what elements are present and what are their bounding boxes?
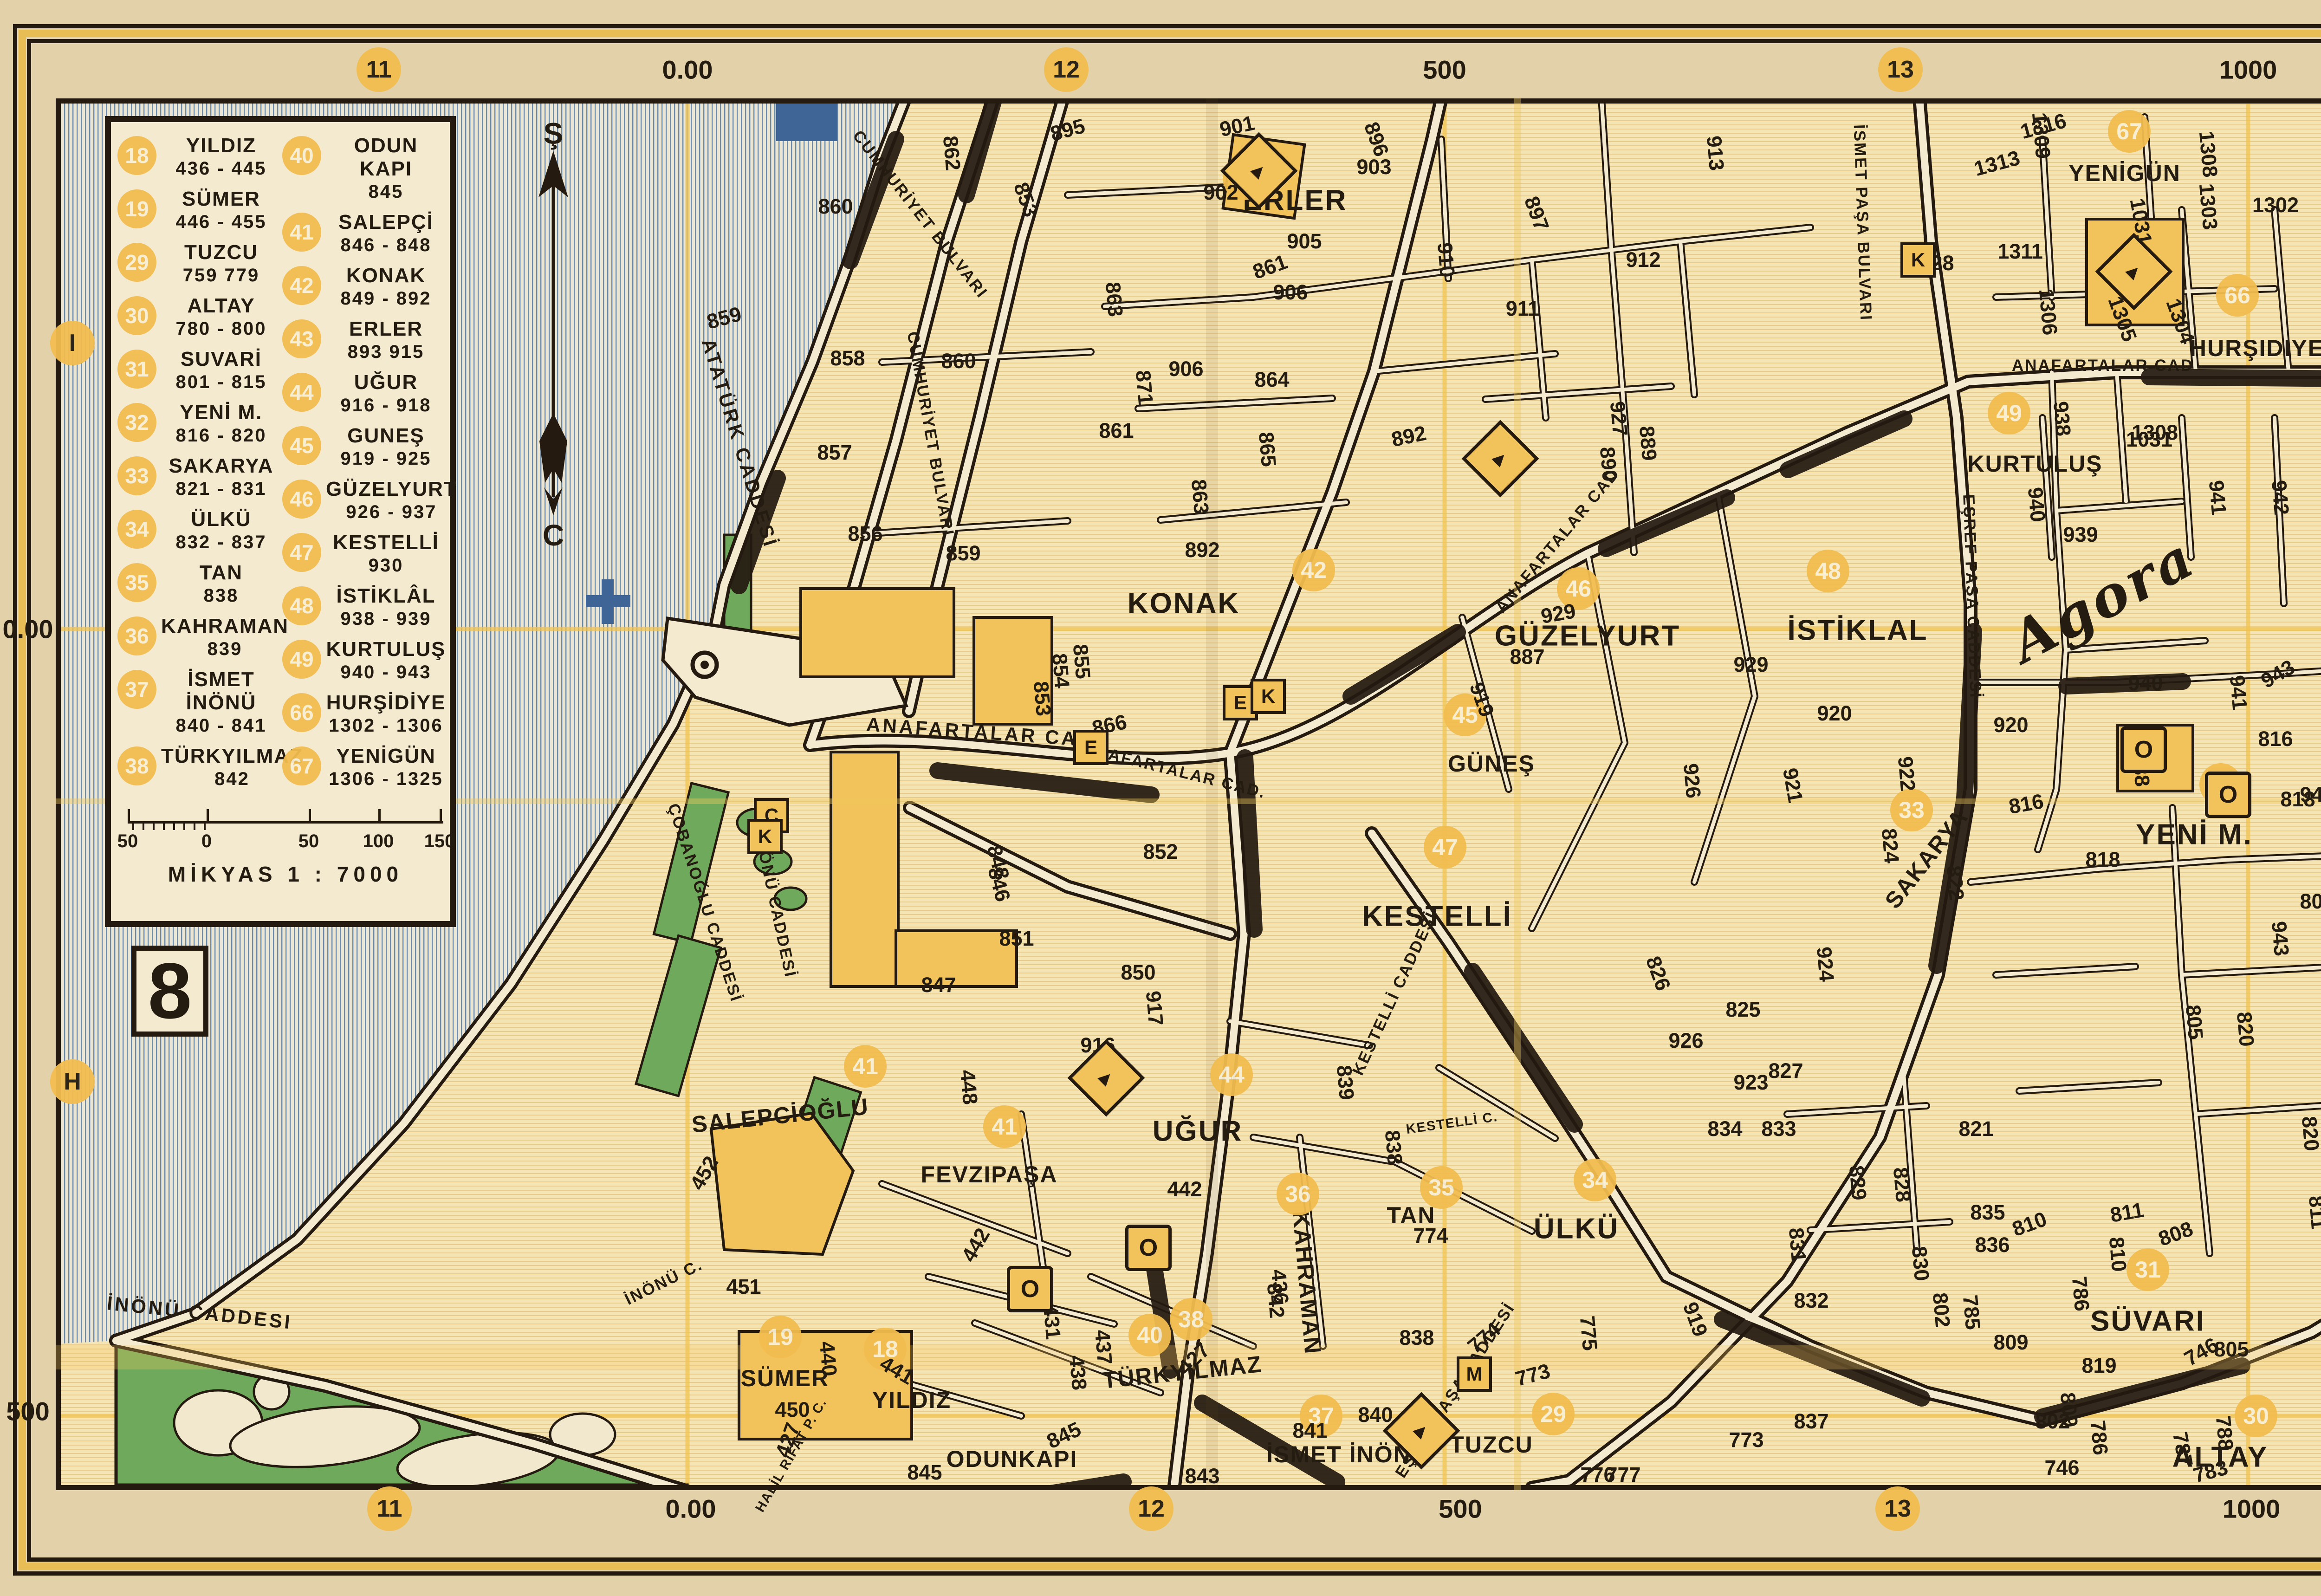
house-number: 837 [1794, 1409, 1828, 1434]
house-number: 835 [1970, 1200, 2005, 1225]
house-number: 788 [2211, 1414, 2238, 1451]
house-number: 852 [1143, 840, 1178, 864]
house-number: 1303 [2194, 182, 2223, 231]
house-number: 941 [2225, 674, 2252, 711]
house-number: 912 [1626, 248, 1660, 272]
house-number: 839 [1332, 1064, 1359, 1101]
house-number: 806 [2300, 889, 2321, 914]
mosque-icon: ▲ [2095, 233, 2173, 311]
district-label-salepci-o-lu: SALEPCİOĞLU [690, 1093, 870, 1138]
house-number: 1306 [2034, 288, 2062, 336]
grid-ref-label: 0.00 [666, 1494, 716, 1524]
house-number: 863 [1101, 281, 1128, 318]
house-number: 864 [1254, 368, 1289, 392]
street-label: İSMET PAŞA BULVARI [1850, 124, 1875, 321]
house-number: 820 [2297, 1115, 2321, 1152]
district-label-s-mer: SÜMER [741, 1365, 830, 1392]
house-number: 942 [2267, 479, 2294, 516]
district-label-yeni-m-: YENİ M. [2136, 818, 2253, 851]
house-number: 892 [1185, 538, 1219, 562]
house-number: 436 [1266, 1268, 1293, 1305]
house-number: 843 [1185, 1464, 1219, 1488]
house-number: 901 [1218, 111, 1257, 142]
house-number: 911 [1506, 297, 1540, 321]
house-number: 451 [726, 1275, 761, 1299]
street-label: ANAFARTALAR CAD [2012, 357, 2194, 375]
house-number: 450 [775, 1398, 810, 1422]
house-number: 836 [1975, 1233, 2010, 1257]
house-number: 773 [1729, 1428, 1763, 1452]
house-number: 774 [1413, 1224, 1448, 1248]
house-number: 810 [2009, 1207, 2050, 1242]
house-number: 841 [1292, 1419, 1327, 1443]
district-label-u-ur: UĞUR [1153, 1115, 1243, 1148]
house-number: 923 [1733, 1070, 1768, 1095]
district-number-kestelli-: 47 [1424, 826, 1466, 869]
house-number: 929 [1733, 653, 1768, 677]
street-label: İNÖNÜ CADDESI [106, 1292, 293, 1334]
grid-ref-circle: 12 [1044, 47, 1089, 92]
house-number: 940 [2128, 671, 2163, 695]
letter-marker-m: M [1457, 1356, 1492, 1392]
house-number: 808 [2155, 1217, 2196, 1252]
house-number: 824 [1877, 827, 1904, 864]
district-number-kahraman: 36 [1277, 1173, 1319, 1215]
grid-ref-label: 0.00 [3, 614, 53, 644]
house-number: 845 [907, 1460, 942, 1485]
district-label-yildiz: YILDIZ [872, 1387, 951, 1414]
grid-ref-label: 500 [6, 1396, 49, 1427]
street-label: KESTELLİ CADDESİ [1349, 908, 1441, 1078]
house-number: 919 [1678, 1299, 1713, 1340]
house-number: 829 [1844, 1164, 1871, 1201]
house-number: 802 [2035, 1409, 2070, 1434]
district-number-t-rkyilmaz: 38 [1170, 1298, 1212, 1341]
district-number-s-mer: 19 [759, 1316, 802, 1358]
o-building-marker: O [1125, 1225, 1172, 1271]
house-number: 847 [921, 973, 956, 997]
district-number-u-ur: 44 [1210, 1053, 1253, 1096]
district-number-salepci-o-lu: 41 [844, 1045, 887, 1088]
house-number: 903 [1356, 155, 1391, 179]
house-number: 786 [2086, 1419, 2113, 1456]
house-number: 816 [2258, 727, 2293, 751]
house-number: 943 [2267, 920, 2294, 957]
district-label-tuzcu: TUZCU [1450, 1431, 1533, 1458]
house-number: 819 [2081, 1354, 2116, 1378]
house-number: 944 [2300, 783, 2321, 807]
district-label-hur-idiye: HURŞIDIYE [2190, 335, 2321, 362]
street-label: KESTELLİ C. [1405, 1109, 1499, 1137]
house-number: 822 [1942, 864, 1969, 901]
street-label: EŞREF PAŞA CADDESİ [1959, 494, 1984, 699]
grid-ref-circle: 13 [1875, 1486, 1920, 1531]
house-number: 926 [1679, 762, 1705, 799]
house-number: 906 [1168, 357, 1203, 381]
house-number: 887 [1510, 645, 1544, 669]
house-number: 816 [2007, 789, 2046, 819]
house-number: 448 [955, 1069, 982, 1105]
street-label: ANAFARTALAR CAD. [866, 713, 1103, 752]
house-number: 871 [1131, 369, 1158, 406]
house-number: 943 [2256, 655, 2299, 694]
house-number: 809 [1993, 1330, 2028, 1355]
house-number: 811 [2108, 1198, 2146, 1227]
grid-ref-label: 1000 [2219, 55, 2277, 85]
house-number: 853 [1029, 680, 1056, 717]
house-number: 862 [938, 135, 965, 171]
house-number: 1311 [1997, 240, 2043, 264]
house-number: 890 [1595, 446, 1622, 482]
grid-ref-circle: H [50, 1059, 95, 1104]
letter-marker-k: K [1251, 679, 1286, 714]
house-number: 939 [2063, 523, 2098, 547]
house-number: 863 [1186, 478, 1213, 515]
house-number: 820 [2232, 1011, 2259, 1047]
district-number-yeni-g-n: 67 [2108, 110, 2151, 153]
o-building-marker: O [1007, 1266, 1053, 1312]
house-number: 910 [1433, 241, 1459, 278]
district-label-g-ne-: GÜNEŞ [1448, 750, 1535, 777]
street-label: ATATÜRK CADDESİ [697, 336, 782, 551]
house-number: 865 [1254, 431, 1281, 467]
district-number-konak: 42 [1292, 549, 1335, 591]
house-number: 850 [1121, 960, 1155, 985]
house-number: 840 [1358, 1403, 1393, 1427]
district-label-kahraman: KAHRAMAN [1287, 1210, 1327, 1356]
district-label--lk-: ÜLKÜ [1534, 1213, 1619, 1246]
house-number: 832 [1794, 1289, 1828, 1313]
district-number-sakarya: 33 [1890, 789, 1933, 831]
o-building-marker: O [2205, 772, 2251, 818]
street-label: İNÖNÜ C. [622, 1255, 706, 1309]
mosque-icon: ▲ [1462, 420, 1539, 498]
house-number: 785 [1958, 1294, 1985, 1330]
house-number: 853 [1009, 179, 1044, 220]
house-number: 452 [685, 1152, 724, 1194]
district-number-i-sti-klal: 48 [1807, 550, 1849, 592]
house-number: 825 [1725, 998, 1760, 1022]
house-number: 1308 [2194, 130, 2223, 178]
district-number-tuzcu: 29 [1532, 1393, 1575, 1435]
house-number: 1304 [2161, 295, 2199, 347]
district-number-hur-idiye: 66 [2216, 274, 2259, 317]
district-label-s-vari: SÜVARI [2090, 1305, 2205, 1338]
house-number: 1031 [2126, 428, 2172, 452]
house-number: 905 [1287, 229, 1322, 253]
house-number: 773 [1513, 1359, 1553, 1391]
district-number-fevzipa-a: 41 [983, 1105, 1026, 1148]
house-number: 921 [1778, 766, 1808, 805]
house-number: 922 [1893, 755, 1920, 792]
house-number: 810 [2104, 1236, 2131, 1272]
district-number-altay: 30 [2235, 1395, 2277, 1437]
house-number: 856 [848, 522, 882, 546]
house-number: 834 [1707, 1117, 1742, 1141]
house-number: 838 [1380, 1129, 1407, 1166]
grid-ref-label: 1000 [2223, 1494, 2281, 1524]
house-number: 438 [1064, 1354, 1091, 1391]
grid-ref-label: 500 [1423, 55, 1466, 85]
house-number: 1313 [1971, 146, 2023, 181]
house-number: 821 [1958, 1117, 1993, 1141]
letter-marker-k: K [1900, 242, 1936, 278]
house-number: 917 [1141, 990, 1168, 1026]
district-label-yeni-g-n: YENİGÜN [2068, 160, 2181, 187]
o-building-marker: O [2120, 727, 2167, 773]
house-number: 892 [1389, 421, 1428, 452]
house-number: 437 [1090, 1329, 1117, 1365]
district-label-kurtulu-: KURTULUŞ [1968, 450, 2103, 477]
house-number: 913 [1702, 135, 1729, 171]
map-sheet: Ş C 18YILDIZ436 - 44519SÜMER446 - 45529T… [0, 0, 2321, 1596]
house-number: 442 [1167, 1177, 1202, 1201]
house-number: 861 [1250, 250, 1290, 285]
house-number: 902 [1203, 181, 1238, 205]
house-number: 775 [1575, 1315, 1602, 1351]
street-label: ANAFARTALAR CAD. [1081, 739, 1268, 803]
grid-ref-circle: 11 [367, 1486, 412, 1531]
landmark-label: Agora [2000, 524, 2206, 675]
street-label: ÇOBANOĞLU CADDESİ [664, 801, 746, 1005]
house-number: 811 [2304, 1195, 2321, 1231]
district-number-kurtulu-: 49 [1988, 392, 2030, 435]
house-number: 941 [2204, 479, 2231, 516]
house-number: 889 [1634, 425, 1661, 461]
house-number: 924 [1812, 946, 1839, 982]
house-number: 938 [2049, 400, 2075, 437]
house-number: 940 [2023, 486, 2050, 523]
district-label-fevzipa-a: FEVZIPAŞA [921, 1161, 1058, 1188]
grid-ref-circle: 13 [1878, 47, 1923, 92]
mosque-icon: ▲ [1068, 1039, 1145, 1117]
house-number: 906 [1273, 280, 1308, 305]
label-layer: 110.0012500131000110.0012500131000I0.00H… [0, 0, 2321, 1596]
house-number: 838 [1399, 1326, 1434, 1350]
house-number: 895 [1048, 114, 1088, 146]
letter-marker-k: K [747, 819, 783, 854]
house-number: 777 [1606, 1463, 1640, 1487]
house-number: 818 [2085, 848, 2120, 872]
grid-ref-circle: 11 [357, 47, 401, 92]
house-number: 786 [2067, 1275, 2094, 1312]
house-number: 860 [941, 349, 976, 373]
letter-marker-e: E [1073, 730, 1109, 765]
house-number: 802 [1928, 1291, 1955, 1328]
house-number: 860 [818, 195, 853, 219]
grid-ref-label: 500 [1439, 1494, 1482, 1524]
district-number-odunkapi: 40 [1128, 1314, 1171, 1356]
house-number: 858 [830, 346, 865, 370]
street-label: CUMHURİYET BULVARI [849, 127, 992, 302]
house-number: 833 [1761, 1117, 1796, 1141]
house-number: 897 [1519, 193, 1554, 234]
district-label-i-sti-klal: İSTİKLAL [1788, 614, 1928, 647]
house-number: 746 [2044, 1456, 2079, 1480]
house-number: 1302 [2252, 193, 2299, 217]
house-number: 440 [815, 1340, 842, 1377]
house-number: 851 [999, 927, 1034, 951]
house-number: 920 [1817, 701, 1852, 726]
district-number-tan: 35 [1420, 1166, 1463, 1209]
house-number: 805 [2181, 1004, 2208, 1040]
house-number: 920 [1993, 713, 2028, 737]
house-number: 861 [1099, 419, 1134, 443]
house-number: 926 [1668, 1029, 1703, 1053]
grid-ref-circle: 12 [1129, 1486, 1173, 1531]
house-number: 826 [1641, 953, 1676, 994]
house-number: 830 [1907, 1245, 1934, 1282]
house-number: 1316 [2018, 109, 2069, 144]
district-number--lk-: 34 [1574, 1159, 1616, 1201]
district-number-s-vari: 31 [2127, 1248, 2169, 1291]
house-number: 442 [957, 1224, 995, 1266]
house-number: 857 [817, 441, 852, 465]
house-number: 828 [1888, 1166, 1915, 1203]
district-label-konak: KONAK [1128, 587, 1240, 620]
grid-ref-label: 0.00 [662, 55, 713, 85]
house-number: 859 [704, 302, 744, 334]
house-number: 827 [1768, 1059, 1803, 1083]
grid-ref-circle: I [50, 321, 95, 365]
house-number: 831 [1784, 1226, 1811, 1263]
house-number: 927 [1605, 400, 1632, 437]
house-number: 896 [1359, 119, 1394, 160]
house-number: 859 [946, 541, 980, 565]
